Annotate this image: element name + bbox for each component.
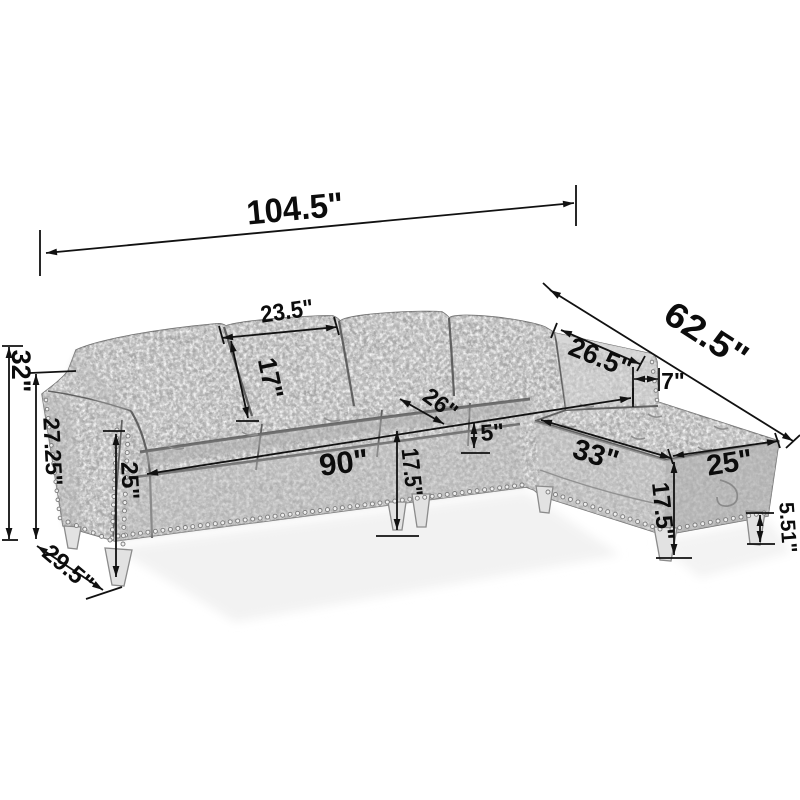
svg-text:7": 7" bbox=[661, 368, 685, 394]
svg-text:27.25": 27.25" bbox=[38, 417, 68, 487]
svg-text:17.5": 17.5" bbox=[396, 447, 428, 498]
svg-text:90": 90" bbox=[317, 442, 370, 483]
svg-text:25": 25" bbox=[115, 461, 144, 500]
svg-text:5.51": 5.51" bbox=[774, 501, 800, 553]
svg-text:5": 5" bbox=[479, 418, 505, 446]
svg-text:32": 32" bbox=[6, 350, 36, 393]
